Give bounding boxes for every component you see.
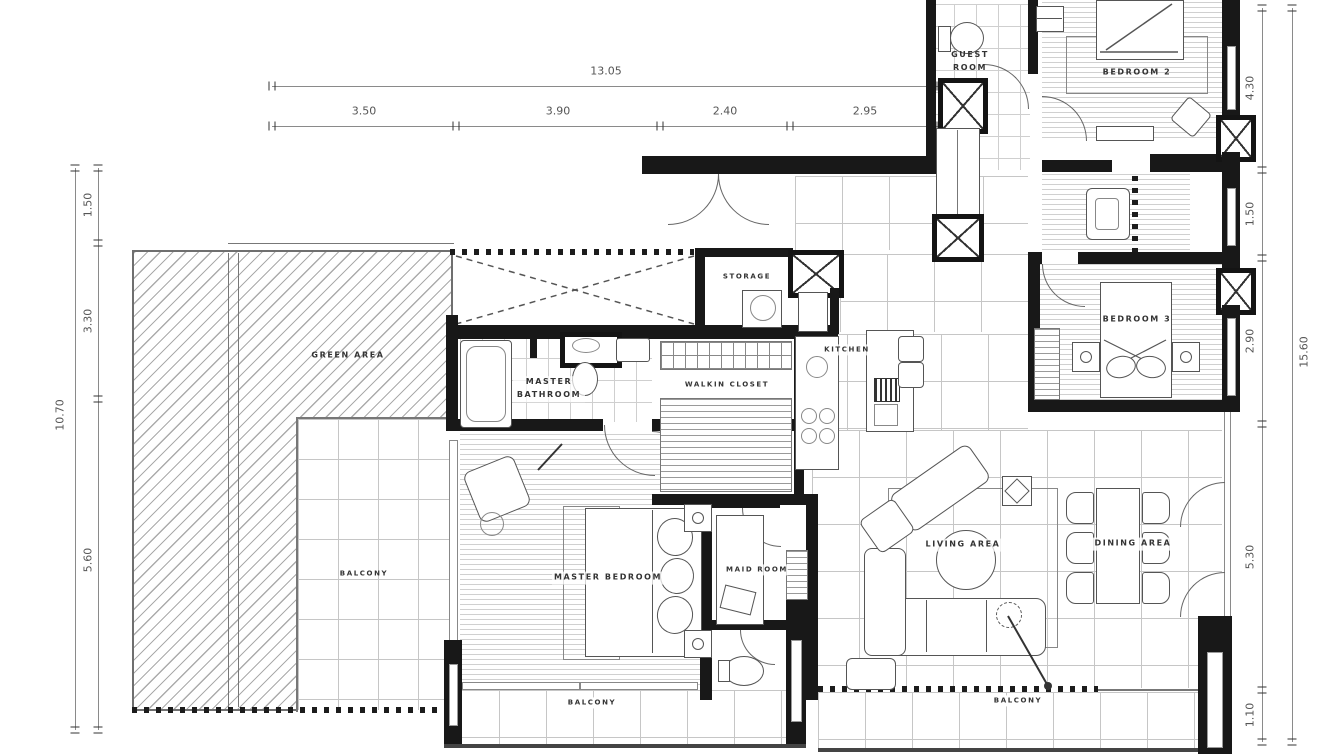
balcony-right-label: BALCONY bbox=[991, 695, 1045, 706]
balcony-bench bbox=[846, 658, 896, 690]
balcony2-bottom-rail bbox=[818, 748, 1202, 752]
bedroom3-nightstand-1 bbox=[1072, 342, 1100, 372]
kitchen-stool-2 bbox=[898, 362, 924, 388]
dim-right-seg4: 5.30 bbox=[1244, 545, 1257, 570]
balcony1-sliding-door-1 bbox=[462, 682, 580, 690]
dim-left-seg2: 3.30 bbox=[82, 309, 95, 334]
dim-left-total-label: 10.70 bbox=[54, 399, 67, 431]
dim-left-seg3: 5.60 bbox=[82, 548, 95, 573]
column-foyer-shaft bbox=[938, 78, 988, 134]
wall-bedroom3-top-b bbox=[1078, 252, 1222, 264]
guest-room-label: GUEST ROOM bbox=[945, 49, 995, 75]
dining-chair-3 bbox=[1066, 572, 1094, 604]
entry-door-swing-2 bbox=[718, 174, 769, 225]
master-lamp-mark bbox=[536, 442, 566, 472]
master-nightstand-2 bbox=[684, 630, 712, 658]
bedroom2-dresser bbox=[1096, 126, 1154, 141]
island-sink bbox=[874, 404, 898, 426]
stove-burner-2 bbox=[819, 408, 835, 424]
window-nook bbox=[1227, 188, 1236, 246]
dim-right-seg5: 1.10 bbox=[1244, 703, 1257, 728]
maid-toilet-bowl bbox=[724, 656, 764, 686]
bedroom3-label: BEDROOM 3 bbox=[1103, 314, 1172, 327]
dim-top-seg3: 2.40 bbox=[713, 105, 738, 118]
dim-top-seg1: 3.50 bbox=[352, 105, 377, 118]
stove-burner-3 bbox=[801, 428, 817, 444]
dim-right-seg3: 2.90 bbox=[1244, 329, 1257, 354]
maid-wardrobe bbox=[786, 550, 808, 600]
bedroom3-nightstand-2 bbox=[1172, 342, 1200, 372]
dining-chair-6 bbox=[1142, 572, 1170, 604]
window-bedroom2 bbox=[1227, 46, 1236, 110]
wall-entry-top bbox=[642, 156, 968, 174]
kitchen-sink bbox=[806, 356, 828, 378]
wall-guest-left bbox=[926, 0, 936, 156]
wall-storage-top bbox=[695, 248, 793, 257]
column-bottom-right-slot bbox=[1207, 652, 1223, 748]
dining-area-label: DINING AREA bbox=[1093, 538, 1174, 551]
void-x-mark bbox=[456, 256, 694, 324]
wall-bedroom3-top-a bbox=[1028, 252, 1042, 264]
fridge bbox=[798, 292, 828, 332]
column-balcony1-right-slot bbox=[791, 640, 802, 722]
bedroom3-blanket-fold bbox=[1100, 282, 1170, 396]
stove-burner-1 bbox=[801, 408, 817, 424]
wall-bath-stub bbox=[530, 334, 537, 358]
bedroom2-blanket-fold bbox=[1096, 0, 1182, 58]
bath-sink-2 bbox=[616, 338, 650, 362]
living-area-label: LIVING AREA bbox=[924, 539, 1003, 552]
balcony-bottom-label: BALCONY bbox=[565, 697, 619, 708]
dim-top-seg2: 3.90 bbox=[546, 105, 571, 118]
dining-chair-1 bbox=[1066, 492, 1094, 524]
void-dashed-rail bbox=[450, 249, 694, 255]
wall-bedroom3-bottom bbox=[1028, 400, 1240, 412]
wall-nook-top-left bbox=[1042, 160, 1112, 172]
bedroom3-shelf bbox=[1034, 328, 1060, 400]
kitchen-stool-1 bbox=[898, 336, 924, 362]
dim-top-total-label: 13.05 bbox=[590, 65, 622, 78]
balcony1-sliding-door-2 bbox=[580, 682, 698, 690]
dim-left-seg1: 1.50 bbox=[82, 193, 95, 218]
nook-dashed-opening bbox=[1132, 176, 1138, 252]
closet-wardrobe bbox=[660, 398, 792, 492]
dim-right-seg2: 1.50 bbox=[1244, 202, 1257, 227]
kitchen-floor-upper bbox=[840, 254, 1028, 332]
bedroom2-label: BEDROOM 2 bbox=[1103, 67, 1172, 80]
green-area-bottom-rail bbox=[132, 707, 454, 713]
bathtub-inner bbox=[466, 346, 506, 422]
balcony-left-label: BALCONY bbox=[340, 568, 388, 579]
balcony-left-floor bbox=[298, 419, 454, 710]
living-arc-lamp bbox=[1004, 612, 1054, 692]
dim-right-seg1: 4.30 bbox=[1244, 76, 1257, 101]
master-nightstand-1 bbox=[684, 504, 712, 532]
window-bedroom3 bbox=[1227, 318, 1236, 396]
dining-chair-2 bbox=[1066, 532, 1094, 564]
dim-top-seg4: 2.95 bbox=[853, 105, 878, 118]
walkin-closet-label: WALKIN CLOSET bbox=[685, 379, 769, 390]
master-side-table bbox=[480, 512, 504, 536]
nook-chair bbox=[1095, 198, 1119, 230]
dining-chair-4 bbox=[1142, 492, 1170, 524]
living-chaise bbox=[864, 548, 906, 656]
master-bathroom-label: MASTER BATHROOM bbox=[513, 376, 585, 402]
kitchen-label: KITCHEN bbox=[824, 344, 870, 355]
master-bedroom-label: MASTER BEDROOM bbox=[552, 572, 664, 585]
column-foyer-2 bbox=[932, 214, 984, 262]
wall-maid-top bbox=[700, 498, 780, 508]
column-balcony1-left-slot bbox=[449, 664, 458, 726]
entry-door-swing-1 bbox=[668, 174, 719, 225]
stove-burner-4 bbox=[819, 428, 835, 444]
bedroom2-side-table bbox=[1036, 6, 1064, 32]
bath-sink-1 bbox=[572, 338, 600, 353]
storage-label: STORAGE bbox=[723, 271, 771, 282]
wall-bath-left bbox=[446, 315, 458, 431]
balcony1-bottom-rail bbox=[444, 744, 806, 748]
island-grill bbox=[874, 378, 900, 402]
maid-toilet-tank bbox=[718, 660, 730, 682]
floor-plan: 13.05 3.50 3.90 2.40 2.95 10.70 1.50 3.3… bbox=[0, 0, 1342, 754]
green-area-label: GREEN AREA bbox=[311, 350, 384, 363]
maid-room-label: MAID ROOM bbox=[726, 564, 788, 575]
washing-machine-drum bbox=[750, 295, 776, 321]
closet-shelf-top bbox=[660, 341, 792, 370]
wall-storage-left bbox=[695, 252, 705, 332]
corridor-floor bbox=[795, 176, 1028, 250]
dim-right-total-label: 15.60 bbox=[1298, 336, 1311, 368]
